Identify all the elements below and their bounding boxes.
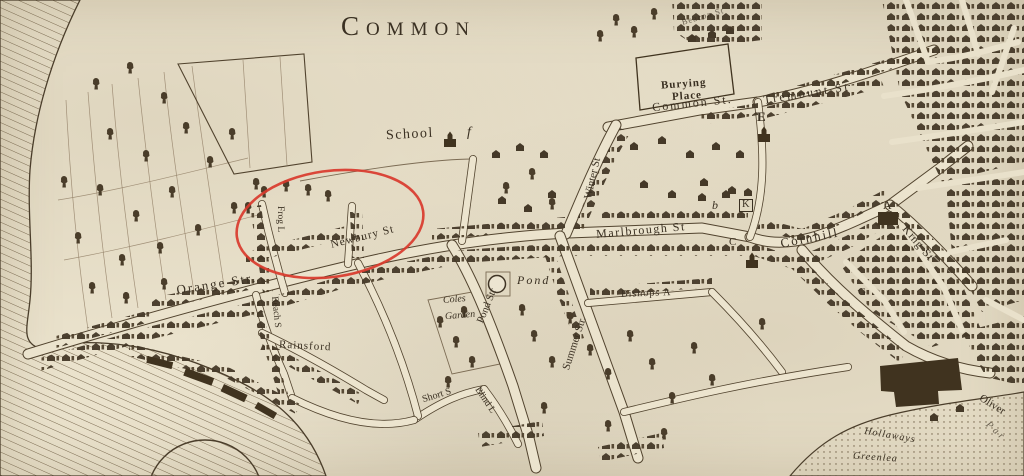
highlight-ellipse-annotation — [230, 158, 431, 289]
annotation-overlay — [0, 0, 1024, 476]
historic-map: Common Burying Place Common St. Tremount… — [0, 0, 1024, 476]
